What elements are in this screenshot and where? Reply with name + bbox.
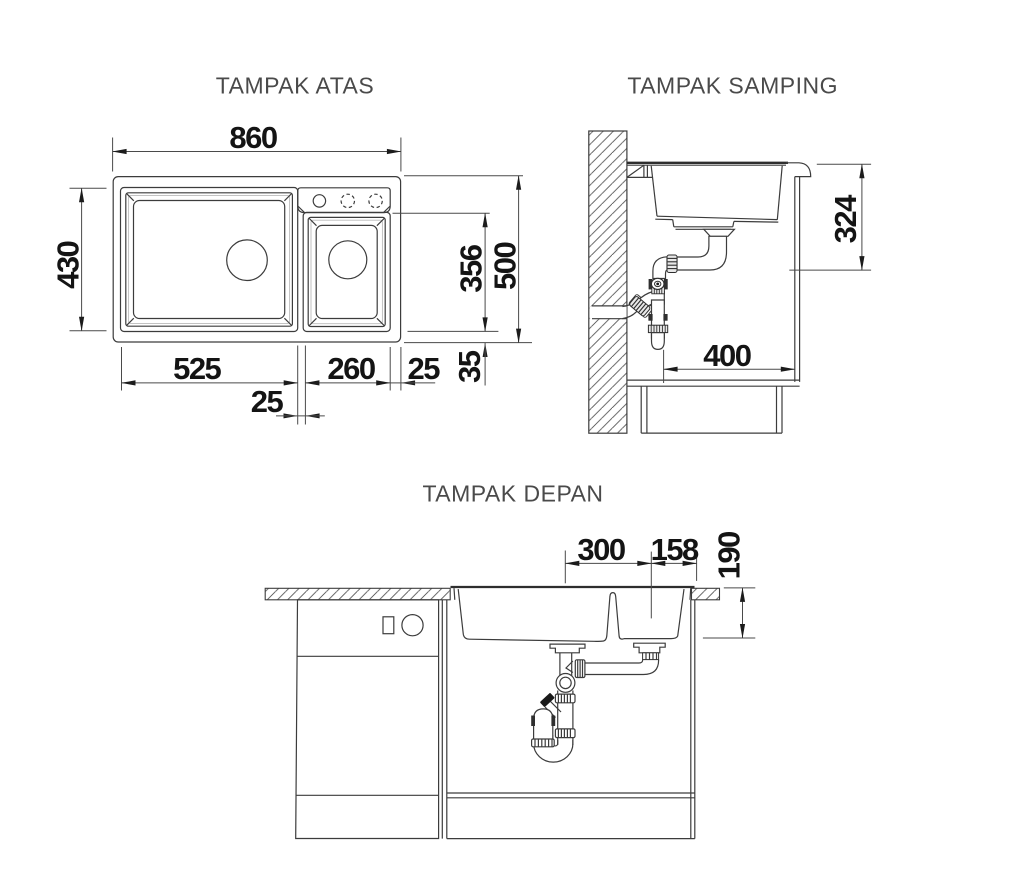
svg-text:25: 25 — [408, 351, 441, 386]
svg-text:260: 260 — [327, 351, 374, 386]
svg-text:525: 525 — [173, 351, 221, 386]
svg-text:190: 190 — [712, 532, 747, 579]
svg-text:430: 430 — [50, 241, 85, 288]
svg-text:324: 324 — [828, 194, 863, 243]
svg-text:400: 400 — [703, 338, 750, 373]
svg-text:356: 356 — [453, 244, 488, 292]
svg-text:TAMPAK SAMPING: TAMPAK SAMPING — [627, 73, 838, 99]
svg-text:TAMPAK ATAS: TAMPAK ATAS — [216, 73, 374, 99]
svg-text:35: 35 — [452, 350, 487, 383]
svg-text:TAMPAK DEPAN: TAMPAK DEPAN — [422, 481, 603, 507]
svg-text:25: 25 — [251, 384, 284, 419]
svg-text:300: 300 — [577, 532, 624, 567]
svg-text:500: 500 — [488, 243, 523, 290]
svg-text:860: 860 — [229, 120, 276, 155]
svg-text:158: 158 — [651, 532, 699, 567]
